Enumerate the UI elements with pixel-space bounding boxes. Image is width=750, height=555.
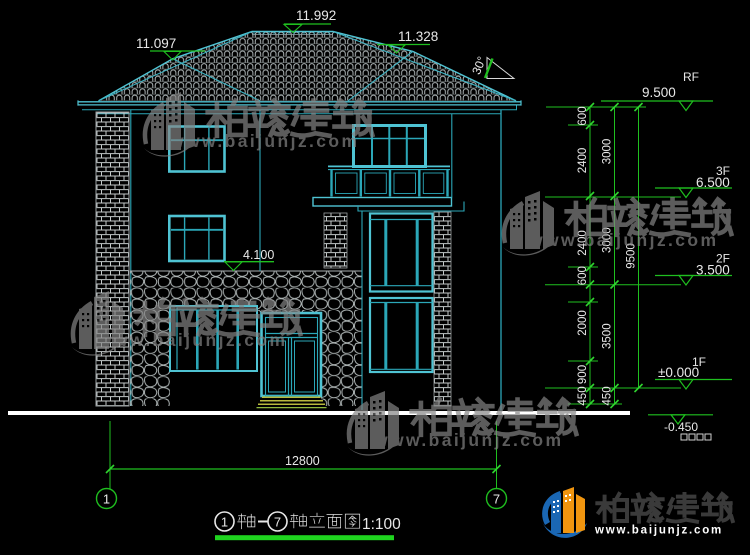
svg-text:±0.000: ±0.000: [658, 365, 699, 380]
svg-text:2400: 2400: [577, 148, 589, 174]
svg-text:1: 1: [103, 492, 110, 507]
svg-text:600: 600: [577, 266, 589, 285]
svg-text:12800: 12800: [285, 454, 320, 468]
svg-text:1:100: 1:100: [362, 516, 401, 533]
svg-text:9.500: 9.500: [642, 85, 676, 100]
svg-text:450: 450: [602, 386, 614, 405]
svg-text:3500: 3500: [602, 323, 614, 349]
svg-text:11.992: 11.992: [296, 8, 336, 23]
svg-text:3000: 3000: [602, 139, 614, 165]
svg-text:11.328: 11.328: [398, 29, 438, 44]
svg-text:7: 7: [274, 515, 281, 530]
svg-text:-0.450: -0.450: [664, 420, 698, 434]
svg-text:RF: RF: [683, 70, 699, 84]
svg-text:4.100: 4.100: [243, 248, 274, 262]
svg-text:1: 1: [221, 515, 228, 530]
svg-text:600: 600: [577, 106, 589, 125]
svg-text:450: 450: [577, 386, 589, 405]
svg-text:11.097: 11.097: [136, 36, 176, 51]
svg-text:900: 900: [577, 365, 589, 384]
svg-text:www.baijunjz.com: www.baijunjz.com: [594, 525, 723, 537]
svg-text:2000: 2000: [577, 310, 589, 336]
svg-text:7: 7: [493, 492, 500, 507]
